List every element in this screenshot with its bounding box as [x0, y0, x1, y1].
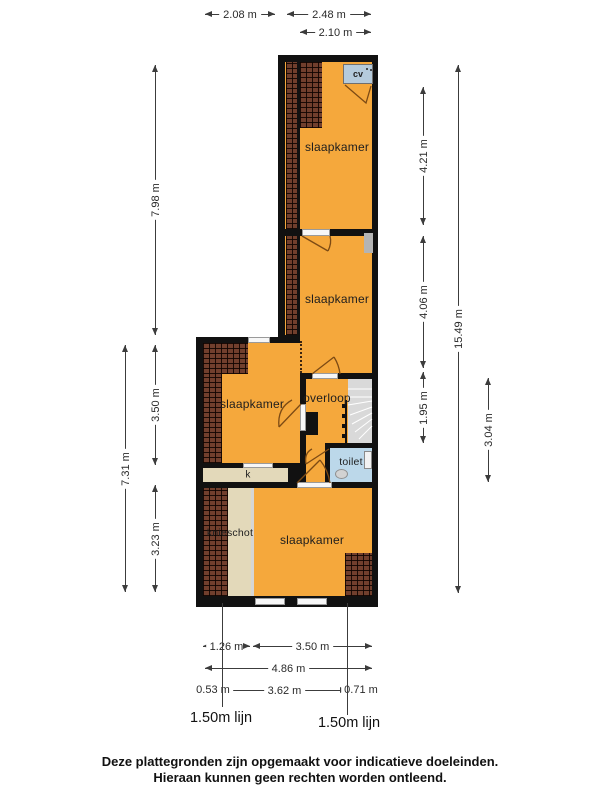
door-opening-bottom-room — [297, 482, 332, 488]
dim-top-right-width: 2.48 m — [287, 14, 371, 15]
dim-label: 2.48 m — [308, 9, 350, 21]
dim-label: 2.08 m — [219, 9, 261, 21]
duct-block — [364, 233, 373, 253]
dim-right-overloop: 1.95 m — [423, 372, 424, 443]
knieschot-partition-line — [251, 488, 254, 596]
cv-unit-knobs — [366, 68, 368, 70]
stair-railing-tick — [342, 424, 346, 428]
wall-bottomroom-top — [196, 482, 378, 488]
dim-label: 3.23 m — [150, 519, 162, 559]
dim-label: 1.26 m — [206, 641, 248, 653]
dim-label: 7.98 m — [150, 180, 162, 220]
dim-top-left-width: 2.08 m — [205, 14, 275, 15]
label-overloop: overloop — [303, 391, 351, 405]
height-line-150-left — [222, 603, 223, 707]
staircase — [348, 379, 372, 443]
dim-bottom-150-span: 3.62 m — [222, 690, 347, 691]
height-line-150-right — [347, 603, 348, 715]
stair-railing-tick — [342, 414, 346, 418]
roof-hatch-left-room-wide — [203, 343, 248, 374]
label-closet-k: k — [245, 470, 250, 481]
dim-label: 3.62 m — [264, 685, 306, 697]
label-150-lijn-left: 1.50m lijn — [190, 710, 252, 726]
dotted-boundary-line — [300, 341, 302, 373]
dim-right-lower: 3.04 m — [488, 378, 489, 482]
dim-label: 4.06 m — [418, 282, 430, 322]
stair-railing-tick — [342, 434, 346, 438]
label-knieschot: knieschot — [207, 527, 253, 539]
dim-label: 2.10 m — [315, 27, 357, 39]
dim-right-room2: 4.06 m — [423, 236, 424, 368]
roof-hatch-middle-room-line — [297, 236, 300, 335]
toilet-bowl — [335, 469, 348, 479]
roof-hatch-bottom-right — [345, 553, 372, 596]
dim-label: 4.21 m — [418, 136, 430, 176]
dim-bottom-150-left-offset: 0.53 m — [193, 684, 233, 696]
label-150-lijn-right: 1.50m lijn — [318, 715, 380, 731]
roof-hatch-bottom-left — [203, 488, 228, 596]
dim-right-room1: 4.21 m — [423, 87, 424, 225]
dim-left-mid: 3.50 m — [155, 345, 156, 465]
toilet-cistern — [364, 451, 372, 469]
disclaimer-line-1: Deze plattegronden zijn opgemaakt voor i… — [0, 754, 600, 770]
dim-right-total: 15.49 m — [458, 65, 459, 593]
dim-label: 15.49 m — [453, 306, 465, 352]
knieschot-floor — [228, 488, 251, 596]
dim-label: 7.31 m — [120, 449, 132, 489]
cv-unit: cv — [343, 64, 373, 84]
dim-left-upper: 7.98 m — [155, 65, 156, 335]
dim-label: 4.86 m — [268, 663, 310, 675]
chimney-block — [305, 412, 318, 435]
dim-left-lower: 3.23 m — [155, 485, 156, 592]
label-slaapkamer-left: slaapkamer — [220, 397, 284, 411]
dim-label: 1.95 m — [418, 388, 430, 428]
door-opening-left-room — [300, 404, 306, 431]
door-opening-middle-overloop — [312, 373, 338, 379]
dim-left-total: 7.31 m — [125, 345, 126, 592]
label-slaapkamer-top: slaapkamer — [305, 140, 369, 154]
cv-unit-label: cv — [353, 69, 363, 79]
window-bottom-2 — [297, 598, 327, 605]
roof-hatch-cap — [285, 335, 300, 343]
roof-hatch-top-room-narrow — [286, 62, 297, 229]
window-bottom-1 — [255, 598, 285, 605]
dim-label: 3.04 m — [483, 410, 495, 450]
door-opening-top-middle — [302, 229, 330, 236]
dim-label: 3.50 m — [292, 641, 334, 653]
window-top-left-section — [248, 337, 270, 343]
disclaimer-line-2: Hieraan kunnen geen rechten worden ontle… — [0, 770, 600, 786]
dim-bottom-knieschot: 1.26 m — [203, 646, 250, 647]
door-opening-closet-k — [243, 463, 273, 468]
roof-hatch-left-room-narrow — [203, 374, 222, 463]
dim-label: 3.50 m — [150, 385, 162, 425]
roof-hatch-middle-room — [286, 236, 297, 335]
label-slaapkamer-middle: slaapkamer — [305, 292, 369, 306]
label-toilet: toilet — [339, 456, 362, 468]
label-slaapkamer-bottom: slaapkamer — [280, 533, 344, 547]
floorplan-canvas: cv slaapkamer slaapkamer slaapkamer slaa… — [0, 0, 600, 800]
dim-bottom-room: 3.50 m — [253, 646, 372, 647]
dim-top-room-width: 2.10 m — [300, 32, 371, 33]
roof-hatch-top-room-wide — [300, 62, 322, 128]
